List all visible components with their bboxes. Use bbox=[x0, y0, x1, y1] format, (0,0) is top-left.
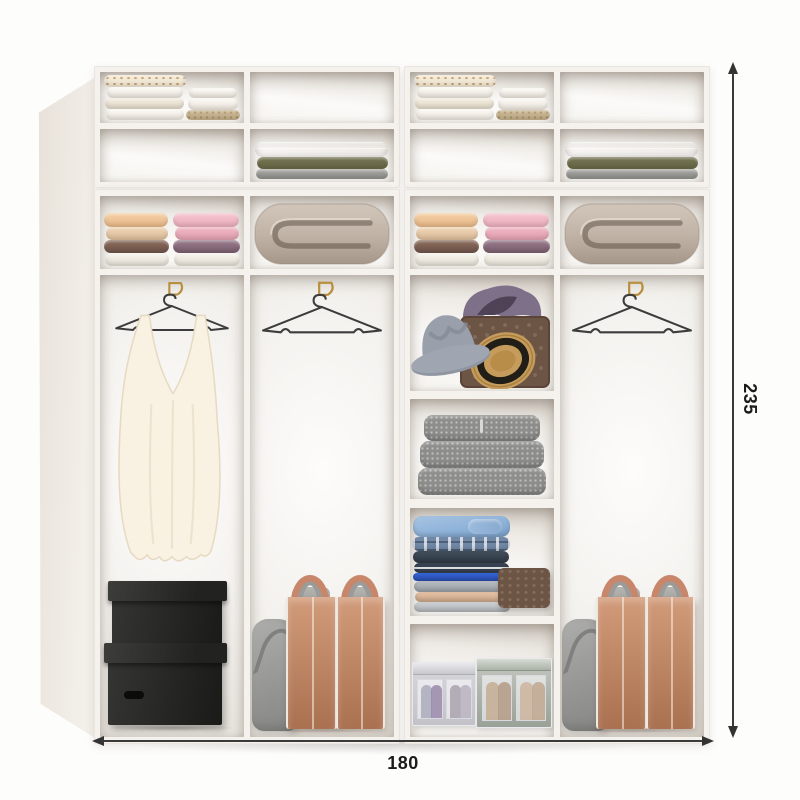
towel bbox=[104, 213, 168, 227]
towel bbox=[484, 253, 550, 266]
folded-garment bbox=[520, 682, 533, 720]
towel bbox=[173, 240, 240, 253]
towel bbox=[485, 227, 549, 240]
folded-blanket bbox=[565, 142, 698, 157]
folded-item bbox=[416, 109, 494, 120]
wardrobe-dimension-diagram: 235 180 bbox=[0, 0, 800, 800]
left-top-cabinet bbox=[94, 66, 400, 188]
width-dimension-label: 180 bbox=[373, 750, 433, 776]
cell-blankets bbox=[250, 129, 394, 182]
folded-blanket bbox=[567, 157, 698, 169]
wicker-box bbox=[498, 568, 550, 608]
towel bbox=[415, 253, 479, 266]
cell-empty bbox=[560, 72, 704, 123]
folded-garment bbox=[532, 682, 545, 720]
towel bbox=[106, 227, 168, 240]
cell-empty bbox=[100, 129, 244, 182]
cell-shirts bbox=[410, 508, 554, 616]
organizer-box bbox=[412, 662, 476, 726]
arrow-down-icon bbox=[728, 726, 738, 738]
folded-shirt bbox=[414, 581, 509, 592]
empty-wire-hanger bbox=[256, 279, 388, 337]
cell-gray-sweaters bbox=[410, 399, 554, 499]
cell-hanging-bags bbox=[560, 275, 704, 737]
bag-handles bbox=[646, 567, 694, 601]
folded-sweater bbox=[418, 468, 546, 495]
organizer-window bbox=[482, 675, 512, 721]
box-handle-hole bbox=[124, 691, 144, 699]
arrow-right-icon bbox=[702, 736, 714, 746]
rolled-duvet bbox=[564, 202, 700, 266]
towel bbox=[105, 253, 169, 266]
folded-garment bbox=[460, 685, 471, 718]
folded-blanket bbox=[257, 157, 388, 169]
white-blouse bbox=[109, 301, 235, 567]
folded-item bbox=[105, 98, 184, 109]
hats-and-wicker-basket bbox=[411, 277, 553, 389]
cell-knitwear bbox=[100, 72, 244, 123]
cell-empty bbox=[410, 129, 554, 182]
patterned-knit-roll bbox=[414, 75, 496, 87]
folded-garment bbox=[486, 682, 499, 720]
patterned-knit-roll bbox=[104, 75, 186, 87]
shirt-fold-line bbox=[468, 519, 502, 534]
folded-item bbox=[188, 98, 238, 110]
cell-hanging-bags bbox=[250, 275, 394, 737]
width-dimension-line bbox=[102, 740, 704, 742]
folded-shirt bbox=[414, 602, 510, 612]
organizer-window bbox=[446, 679, 472, 719]
right-main-cabinet bbox=[404, 189, 710, 744]
folded-blanket bbox=[566, 169, 698, 179]
rolled-duvet bbox=[254, 202, 390, 266]
bag-handles bbox=[286, 567, 334, 601]
organizer-window bbox=[516, 675, 546, 721]
folded-shirt bbox=[413, 573, 509, 581]
cell-towels bbox=[100, 196, 244, 269]
organizer-lid bbox=[477, 659, 551, 671]
tan-storage-bag bbox=[286, 597, 337, 729]
folded-sweater bbox=[420, 441, 544, 468]
cell-towels bbox=[410, 196, 554, 269]
organizer-lid bbox=[413, 663, 475, 675]
height-dimension-label: 235 bbox=[735, 371, 765, 427]
folded-garment bbox=[498, 682, 511, 720]
bag-handles bbox=[596, 567, 644, 601]
black-box-lower bbox=[108, 655, 222, 725]
folded-item bbox=[106, 109, 184, 120]
towel bbox=[175, 227, 239, 240]
sweater-zipper bbox=[480, 419, 483, 433]
towel bbox=[483, 240, 550, 253]
folded-shirt bbox=[414, 563, 509, 573]
towel bbox=[414, 213, 478, 227]
towel bbox=[483, 213, 549, 227]
folded-item bbox=[107, 87, 183, 98]
cell-organizers bbox=[410, 624, 554, 737]
cell-knitwear bbox=[410, 72, 554, 123]
tan-storage-bag bbox=[336, 597, 385, 729]
folded-shirt bbox=[415, 592, 509, 602]
folded-item bbox=[498, 98, 548, 110]
black-box-lid bbox=[108, 581, 227, 601]
left-main-cabinet bbox=[94, 189, 400, 744]
cell-duvet bbox=[250, 196, 394, 269]
folded-blanket bbox=[255, 142, 388, 157]
towel bbox=[414, 240, 479, 253]
folded-item bbox=[415, 98, 494, 109]
towel bbox=[416, 227, 478, 240]
wardrobe-side-panel bbox=[36, 74, 94, 740]
tan-storage-bag bbox=[646, 597, 695, 729]
folded-blanket bbox=[256, 169, 388, 179]
towel bbox=[173, 213, 239, 227]
folded-garment bbox=[431, 685, 442, 718]
cell-duvet bbox=[560, 196, 704, 269]
cell-hanging-blouse bbox=[100, 275, 244, 737]
folded-item bbox=[417, 87, 493, 98]
folded-knit bbox=[496, 110, 550, 120]
folded-shirt bbox=[412, 537, 510, 551]
cell-empty bbox=[250, 72, 394, 123]
folded-item bbox=[499, 88, 547, 98]
height-dimension-line bbox=[732, 72, 734, 726]
bag-handles bbox=[336, 567, 384, 601]
black-box-lid bbox=[104, 643, 227, 663]
organizer-box bbox=[476, 658, 552, 728]
tan-storage-bag bbox=[596, 597, 647, 729]
towel bbox=[104, 240, 169, 253]
cell-blankets bbox=[560, 129, 704, 182]
folded-knit bbox=[186, 110, 240, 120]
folded-shirt bbox=[413, 551, 509, 563]
empty-wire-hanger bbox=[566, 279, 698, 337]
folded-item bbox=[189, 88, 237, 98]
organizer-window bbox=[417, 679, 443, 719]
cell-hats-basket bbox=[410, 275, 554, 391]
towel bbox=[174, 253, 240, 266]
item-shadow bbox=[108, 725, 236, 731]
right-top-cabinet bbox=[404, 66, 710, 188]
